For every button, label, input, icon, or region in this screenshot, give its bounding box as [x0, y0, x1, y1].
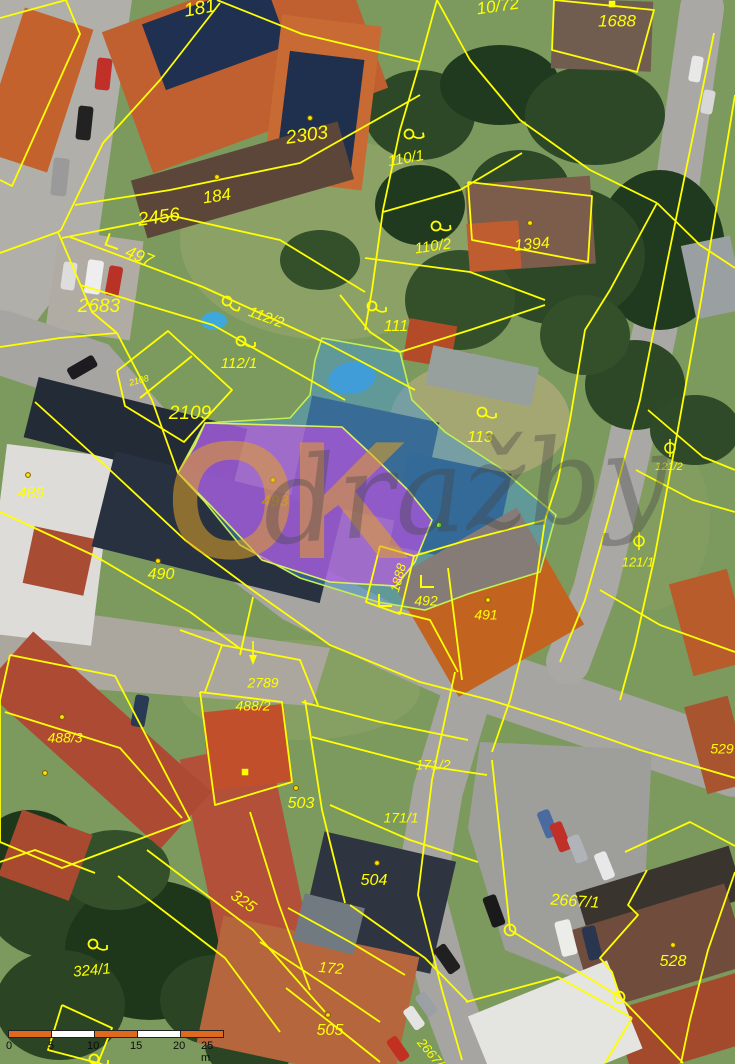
scale-bar-segment [138, 1031, 181, 1037]
parcel-label: 528 [660, 953, 687, 970]
parcel-label: 2667/1 [549, 891, 600, 911]
swimming-pool [201, 312, 227, 330]
parcel-label: 505 [317, 1022, 344, 1039]
parcel-label: 324/1 [73, 960, 112, 980]
dot-symbol [375, 861, 380, 866]
parcel-label: 171/1 [383, 810, 418, 826]
dot-symbol [326, 1013, 331, 1018]
parcel-label: 504 [361, 872, 388, 889]
parcel-label: 171/2 [415, 757, 450, 773]
parcel-label: 489 [18, 485, 45, 502]
parcel-label: 1688 [598, 11, 636, 30]
parcel-label: 2109 [168, 403, 212, 424]
dot-symbol [271, 478, 276, 483]
square-symbol [242, 769, 249, 776]
scale-bar-tick: 15 [130, 1040, 142, 1052]
map-canvas: 18110/721688230318424564972683110/1110/2… [0, 0, 735, 1064]
dot-green-symbol [436, 522, 441, 527]
scale-bar: 0510152025 m [8, 1030, 224, 1053]
dot-symbol [294, 786, 299, 791]
cadastral-map-view[interactable]: 18110/721688230318424564972683110/1110/2… [0, 0, 735, 1064]
tree-canopy [525, 65, 665, 165]
parcel-label: 111 [384, 318, 408, 335]
dot-symbol [60, 715, 65, 720]
parcel-label: 503 [288, 795, 315, 812]
scale-bar-segment [95, 1031, 138, 1037]
scale-bar-segment [52, 1031, 95, 1037]
dot-symbol [528, 221, 533, 226]
scale-bar-tick: 0 [6, 1040, 12, 1052]
parcel-label: 488/2 [235, 698, 270, 714]
dot-symbol [43, 771, 48, 776]
parcel-label: 184 [201, 185, 232, 208]
parcel-label: 1394 [514, 235, 551, 255]
parcel-label: 529 [710, 741, 734, 757]
parcel-label: 121/1 [622, 554, 655, 569]
tree-canopy [375, 165, 465, 245]
building-roof [202, 704, 292, 790]
parcel-label: 492 [414, 593, 438, 609]
scale-bar-segment [9, 1031, 52, 1037]
dot-symbol [26, 473, 31, 478]
parcel-label: 488/3 [47, 730, 82, 746]
parcel-label: 2683 [77, 296, 121, 317]
dot-symbol [215, 175, 220, 180]
parcel-label: 113 [467, 429, 493, 446]
parcel-label: 2789 [246, 675, 278, 691]
parcel-label: 491 [474, 607, 497, 623]
dot-symbol [156, 559, 161, 564]
scale-bar-tick: 20 [173, 1040, 185, 1052]
scale-bar-segments [8, 1030, 224, 1038]
scale-bar-segment [181, 1031, 223, 1037]
square-symbol [609, 1, 616, 8]
scale-bar-ticks: 0510152025 m [8, 1038, 224, 1053]
dot-symbol [486, 598, 491, 603]
dot-symbol [308, 116, 313, 121]
parcel-label: 121/2 [655, 461, 683, 473]
parcel-label: 490 [148, 566, 175, 583]
scale-bar-tick: 10 [87, 1040, 99, 1052]
parcel-label: 112/1 [221, 355, 257, 372]
parcel-label: 172 [318, 959, 345, 978]
scale-bar-tick: 5 [48, 1040, 54, 1052]
dot-symbol [671, 943, 676, 948]
parcel-label: 493 [262, 493, 289, 510]
scale-bar-tick: 25 m [201, 1040, 224, 1064]
